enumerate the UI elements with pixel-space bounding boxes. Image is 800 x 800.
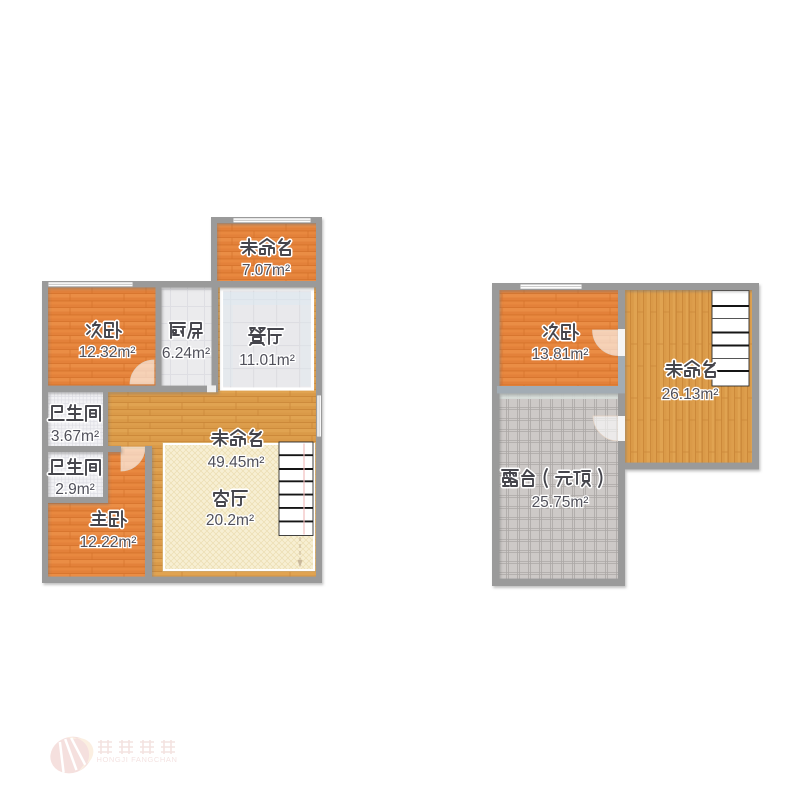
svg-text:3.67m²: 3.67m² [51, 428, 99, 445]
svg-text:2.9m²: 2.9m² [55, 481, 95, 498]
svg-text:7.07m²: 7.07m² [242, 262, 290, 279]
svg-text:6.24m²: 6.24m² [162, 345, 210, 362]
svg-text:26.13m²: 26.13m² [662, 386, 719, 403]
svg-text:12.32m²: 12.32m² [79, 344, 136, 361]
svg-text:20.2m²: 20.2m² [206, 512, 254, 529]
svg-text:49.45m²: 49.45m² [208, 454, 265, 471]
svg-text:HONGJI FANGCHAN: HONGJI FANGCHAN [96, 755, 177, 764]
svg-text:25.75m²: 25.75m² [532, 494, 589, 511]
svg-text:11.01m²: 11.01m² [239, 352, 295, 369]
svg-text:12.22m²: 12.22m² [80, 534, 137, 551]
svg-text:13.81m²: 13.81m² [532, 346, 589, 363]
